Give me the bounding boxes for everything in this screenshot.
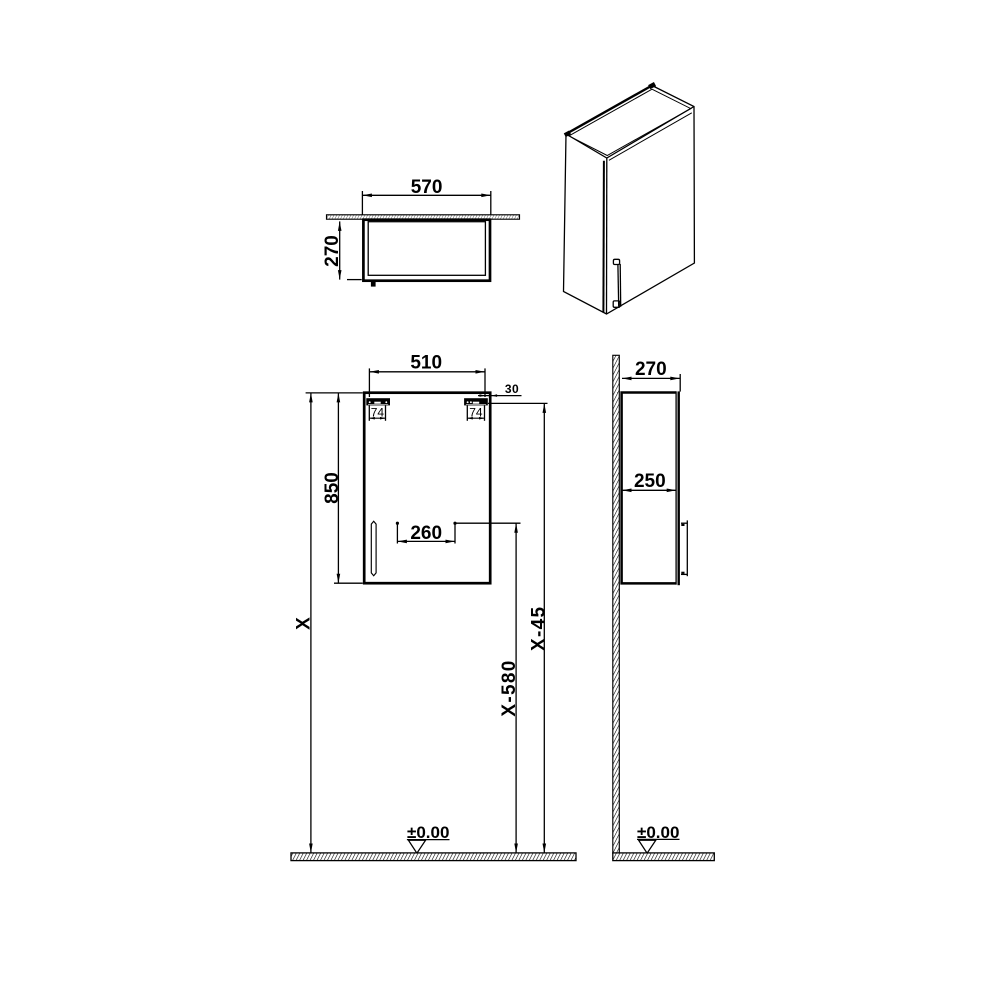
svg-text:74: 74 <box>469 405 483 419</box>
svg-text:X-45: X-45 <box>528 606 549 651</box>
svg-text:260: 260 <box>410 523 442 544</box>
svg-text:270: 270 <box>635 359 667 380</box>
svg-text:30: 30 <box>505 382 519 396</box>
svg-text:270: 270 <box>322 235 343 267</box>
svg-text:250: 250 <box>634 471 666 492</box>
svg-text:X: X <box>294 617 315 630</box>
svg-text:74: 74 <box>371 405 385 419</box>
svg-text:X-580: X-580 <box>499 659 520 716</box>
svg-text:850: 850 <box>322 472 343 504</box>
svg-text:510: 510 <box>410 353 442 374</box>
svg-text:570: 570 <box>411 177 443 198</box>
